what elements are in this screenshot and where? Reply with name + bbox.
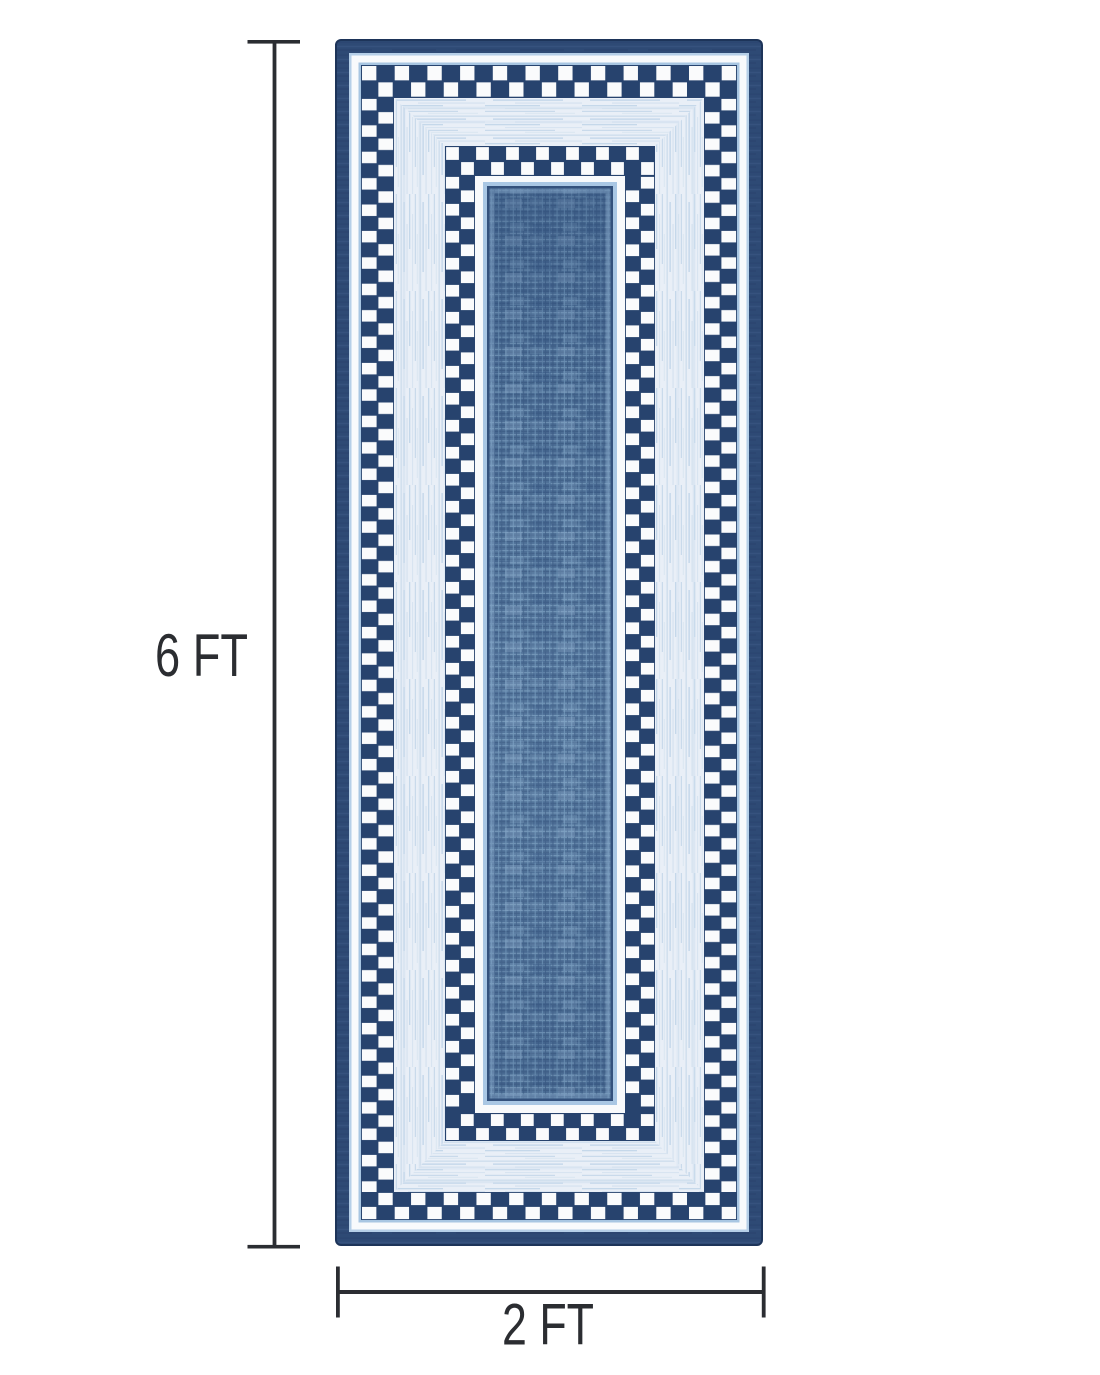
svg-text:2 FT: 2 FT [502, 1293, 594, 1358]
svg-text:6 FT: 6 FT [155, 622, 248, 689]
